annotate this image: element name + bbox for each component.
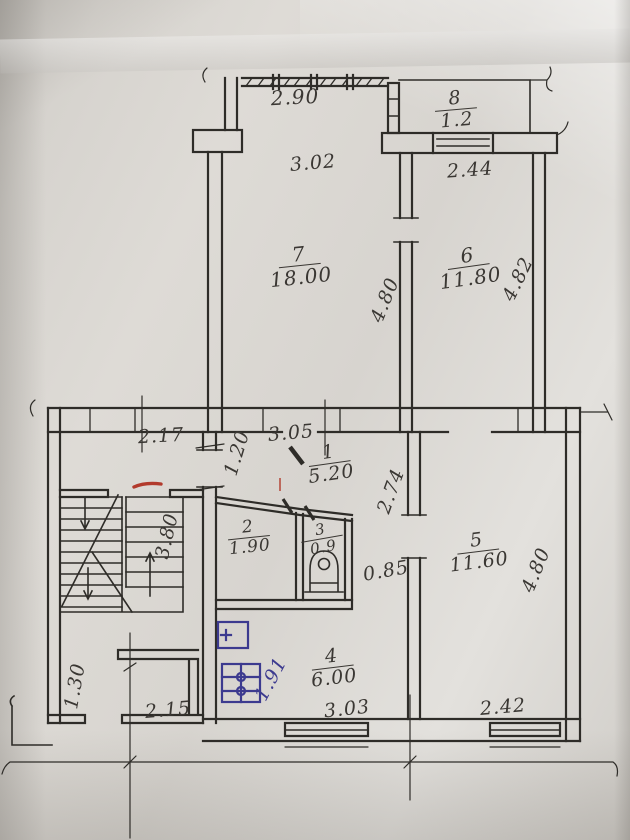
- room-8-label: 8 1.2: [433, 87, 478, 132]
- dim-hall-width: 3.05: [267, 420, 315, 446]
- floorplan-drawing: [0, 0, 630, 840]
- stair-direction-arrow: [146, 553, 154, 596]
- room-7-label: 7 18.00: [267, 241, 334, 291]
- dim-room6-width: 2.44: [446, 157, 494, 182]
- scanned-floor-plan: 7 18.00 6 11.80 8 1.2 1 5.20 2 1.90 3 0.…: [0, 0, 630, 840]
- entry-door-leaf: [290, 447, 303, 464]
- room-2-label: 2 1.90: [226, 517, 272, 559]
- stair-direction-arrow: [81, 498, 89, 529]
- dim-balcony-width: 2.90: [270, 84, 320, 111]
- dim-entry-length: 2.15: [144, 697, 192, 723]
- dim-landing-width: 2.17: [137, 424, 184, 448]
- dim-room5-width: 2.42: [479, 694, 527, 720]
- red-check-mark: [134, 478, 280, 491]
- room-1-label: 1 5.20: [304, 440, 356, 488]
- stair-direction-arrow: [84, 568, 92, 599]
- dim-room7-width: 3.02: [289, 150, 337, 176]
- room-4-label: 4 6.00: [307, 644, 358, 691]
- room-6-label: 6 11.80: [435, 241, 503, 293]
- room-3-label: 3 0.9: [298, 519, 345, 559]
- room-5-label: 5 11.60: [446, 528, 510, 577]
- walls-layer: [10, 75, 580, 747]
- room-8-area: 1.2: [439, 109, 474, 133]
